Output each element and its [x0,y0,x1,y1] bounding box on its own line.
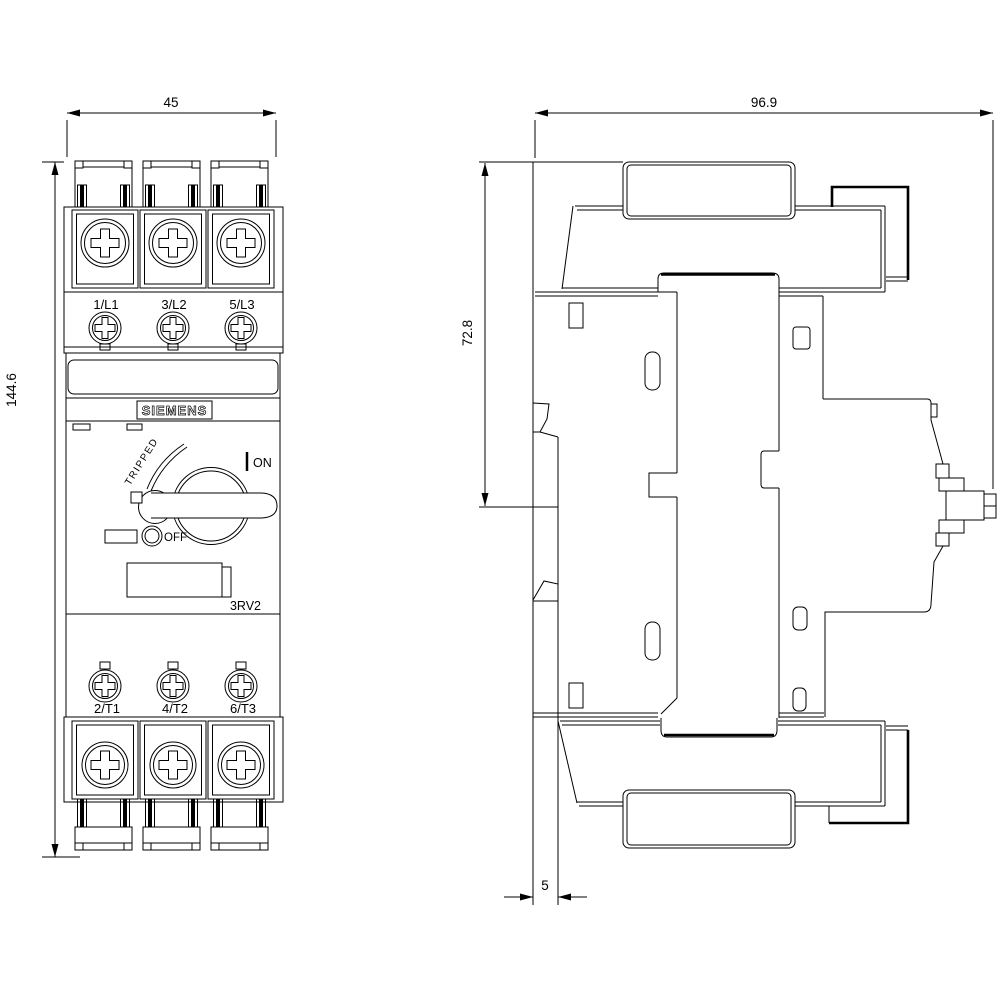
side-bottom-step [829,726,908,823]
arrowhead [520,894,533,901]
rear-wall [533,162,660,717]
side-bottom-cap [623,790,795,848]
arrowhead [52,844,59,857]
clamp-screw [89,662,121,702]
terminal-screw [149,219,197,267]
side-view: 96.9 72.8 5 [460,95,996,905]
terminal-screw [81,219,129,267]
terminal-screw [217,219,265,267]
terminal-cap [143,161,200,207]
knob-latch [131,492,142,503]
bottom-terminal-band [64,717,283,802]
bottom-terminal-caps [75,799,268,850]
terminal-screw [150,742,196,788]
side-top-step [832,187,908,281]
top-terminal-caps [75,161,268,207]
terminal-screw [82,742,128,788]
terminal-cap [143,799,200,850]
label-plate [68,360,278,394]
dim-rail-offset: 5 [504,717,587,905]
terminal-cap [75,799,132,850]
terminal-cap [211,799,268,850]
on-label: ON [253,456,272,470]
terminal-label-3L2: 3/L2 [161,297,186,312]
dim-depth-label: 96.9 [751,95,777,110]
arrowhead [67,110,80,117]
tripped-label: TRIPPED [123,436,161,487]
clamp-screw [225,312,257,350]
dim-height-label: 144.6 [4,373,19,407]
arrowhead [980,110,993,117]
terminal-label-2T1: 2/T1 [94,701,120,716]
front-view: 45 144.6 [4,95,283,857]
rotary-knob[interactable] [131,468,277,545]
output-terminal-strip: 2/T1 4/T2 6/T3 [66,614,280,717]
arrowhead [263,110,276,117]
input-terminal-strip: 1/L1 3/L2 5/L3 [64,292,283,353]
clamp-screw [225,662,257,702]
drawing-canvas: 45 144.6 [0,0,1000,1000]
arrowhead [482,493,489,506]
dim-width-label: 45 [163,95,178,110]
terminal-screw [218,742,264,788]
front-profile [779,296,996,717]
arrowhead [482,163,489,176]
setting-dial-window[interactable] [127,563,222,597]
terminal-label-1L1: 1/L1 [93,297,118,312]
off-label: OFF [164,532,187,544]
center-column [649,273,779,737]
side-top-cap [623,162,795,219]
din-clip-lower [533,581,558,601]
dim-upper-height: 72.8 [460,162,623,507]
terminal-cap [75,161,132,207]
terminal-label-4T2: 4/T2 [162,701,188,716]
dimension-drawing: 45 144.6 [0,0,1000,1000]
on-marking: ON [247,452,272,471]
dim-rail-offset-label: 5 [541,878,549,893]
arrowhead [558,894,571,901]
top-terminal-band [64,207,283,292]
knob-shaft [936,464,996,546]
terminal-cap [211,161,268,207]
clamp-screw [157,662,189,702]
siemens-logo: SIEMENS [142,403,208,418]
dim-upper-height-label: 72.8 [460,320,475,346]
terminal-label-5L3: 5/L3 [229,297,254,312]
dim-height: 144.6 [4,162,80,857]
arrowhead [52,162,59,175]
dim-width: 45 [67,95,276,157]
device-face: SIEMENS TRIPPED ON [66,353,280,614]
clamp-screw [157,312,189,350]
arrowhead [535,110,548,117]
terminal-label-6T3: 6/T3 [230,701,256,716]
model-label: 3RV2 [230,599,261,613]
clamp-screw [89,312,121,350]
din-clip-upper [533,403,549,432]
